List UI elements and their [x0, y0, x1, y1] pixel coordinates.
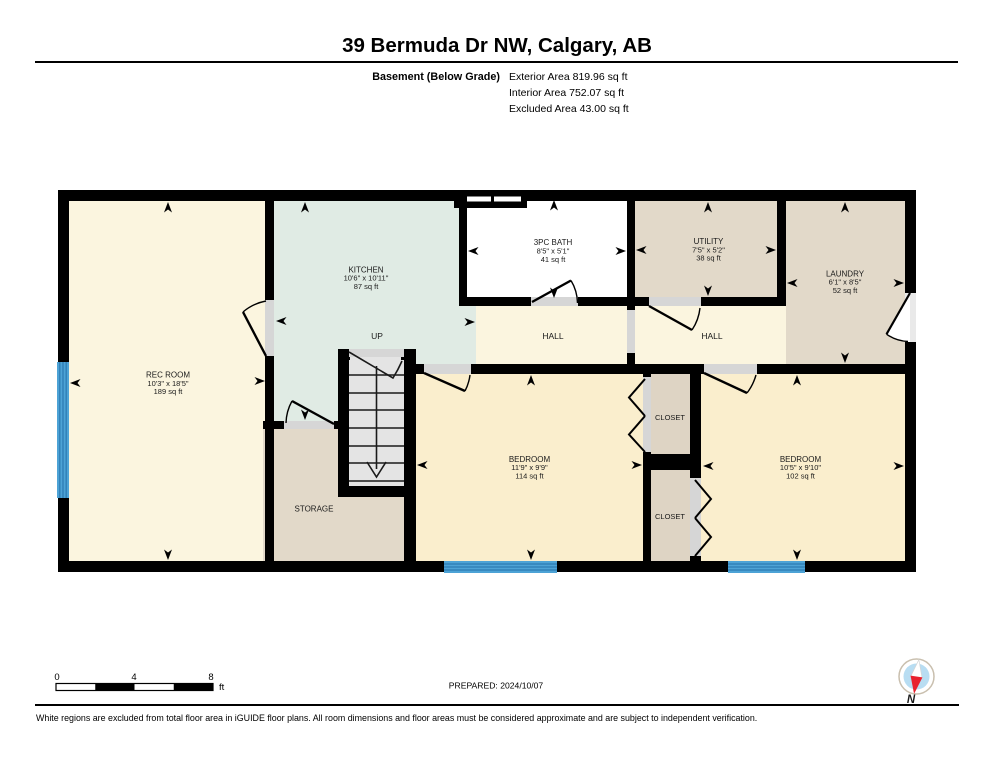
svg-text:8: 8	[208, 672, 213, 683]
svg-text:HALL: HALL	[542, 331, 564, 341]
svg-text:102 sq ft: 102 sq ft	[786, 471, 816, 480]
svg-text:189 sq ft: 189 sq ft	[154, 387, 184, 396]
svg-text:CLOSET: CLOSET	[655, 512, 685, 521]
svg-text:87 sq ft: 87 sq ft	[354, 282, 380, 291]
svg-text:STORAGE: STORAGE	[295, 505, 334, 514]
svg-text:0: 0	[54, 672, 59, 683]
svg-text:Exterior Area 819.96 sq ft: Exterior Area 819.96 sq ft	[509, 71, 628, 83]
svg-text:HALL: HALL	[701, 331, 723, 341]
svg-text:114 sq ft: 114 sq ft	[515, 471, 544, 480]
svg-text:CLOSET: CLOSET	[655, 413, 685, 422]
svg-text:White regions are excluded fro: White regions are excluded from total fl…	[36, 713, 757, 723]
svg-text:Basement (Below Grade): Basement (Below Grade)	[372, 71, 500, 83]
svg-text:41 sq ft: 41 sq ft	[541, 255, 567, 264]
svg-text:UP: UP	[371, 331, 383, 341]
svg-text:ft: ft	[219, 682, 225, 693]
svg-text:52 sq ft: 52 sq ft	[833, 286, 859, 295]
svg-text:Excluded Area 43.00 sq ft: Excluded Area 43.00 sq ft	[509, 103, 629, 115]
svg-text:4: 4	[131, 672, 136, 683]
svg-text:39 Bermuda Dr NW, Calgary, AB: 39 Bermuda Dr NW, Calgary, AB	[342, 34, 652, 57]
svg-text:Interior Area 752.07 sq ft: Interior Area 752.07 sq ft	[509, 87, 624, 99]
svg-text:38 sq ft: 38 sq ft	[696, 254, 722, 263]
svg-text:PREPARED: 2024/10/07: PREPARED: 2024/10/07	[449, 681, 544, 691]
